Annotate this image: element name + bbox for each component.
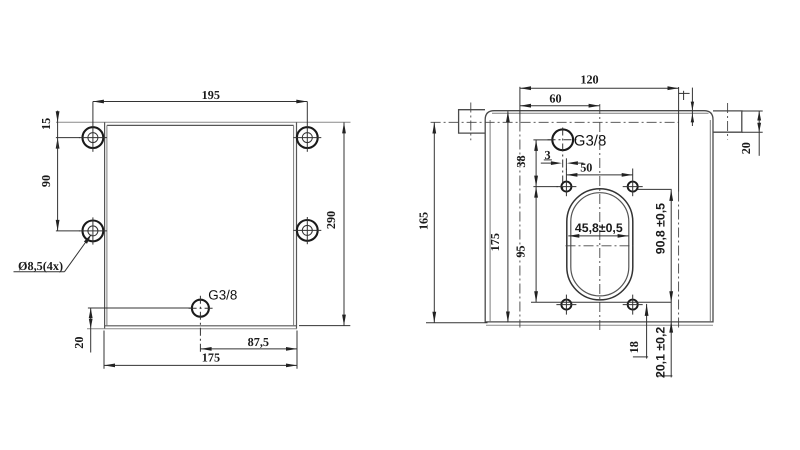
svg-text:18: 18 [627, 341, 641, 353]
svg-text:60: 60 [549, 92, 561, 106]
svg-text:45,8±0,5: 45,8±0,5 [575, 221, 623, 235]
svg-text:38: 38 [514, 155, 528, 167]
svg-text:90: 90 [39, 175, 53, 187]
svg-text:120: 120 [580, 72, 598, 86]
svg-text:95: 95 [514, 245, 528, 257]
svg-text:20,1 ±0,2: 20,1 ±0,2 [653, 327, 667, 378]
svg-text:175: 175 [202, 351, 220, 365]
svg-text:15: 15 [39, 118, 53, 130]
svg-text:175: 175 [488, 233, 502, 251]
svg-text:20: 20 [739, 142, 753, 154]
svg-text:20: 20 [72, 337, 86, 349]
svg-text:50: 50 [580, 161, 592, 175]
svg-text:90,8 ±0,5: 90,8 ±0,5 [653, 203, 667, 254]
svg-text:G3/8: G3/8 [208, 288, 237, 303]
svg-text:Ø8,5(4x): Ø8,5(4x) [18, 259, 63, 273]
svg-text:87,5: 87,5 [248, 335, 269, 349]
svg-text:G3/8: G3/8 [574, 133, 607, 150]
svg-text:195: 195 [202, 88, 220, 102]
svg-text:290: 290 [324, 211, 338, 229]
svg-text:165: 165 [416, 212, 430, 230]
